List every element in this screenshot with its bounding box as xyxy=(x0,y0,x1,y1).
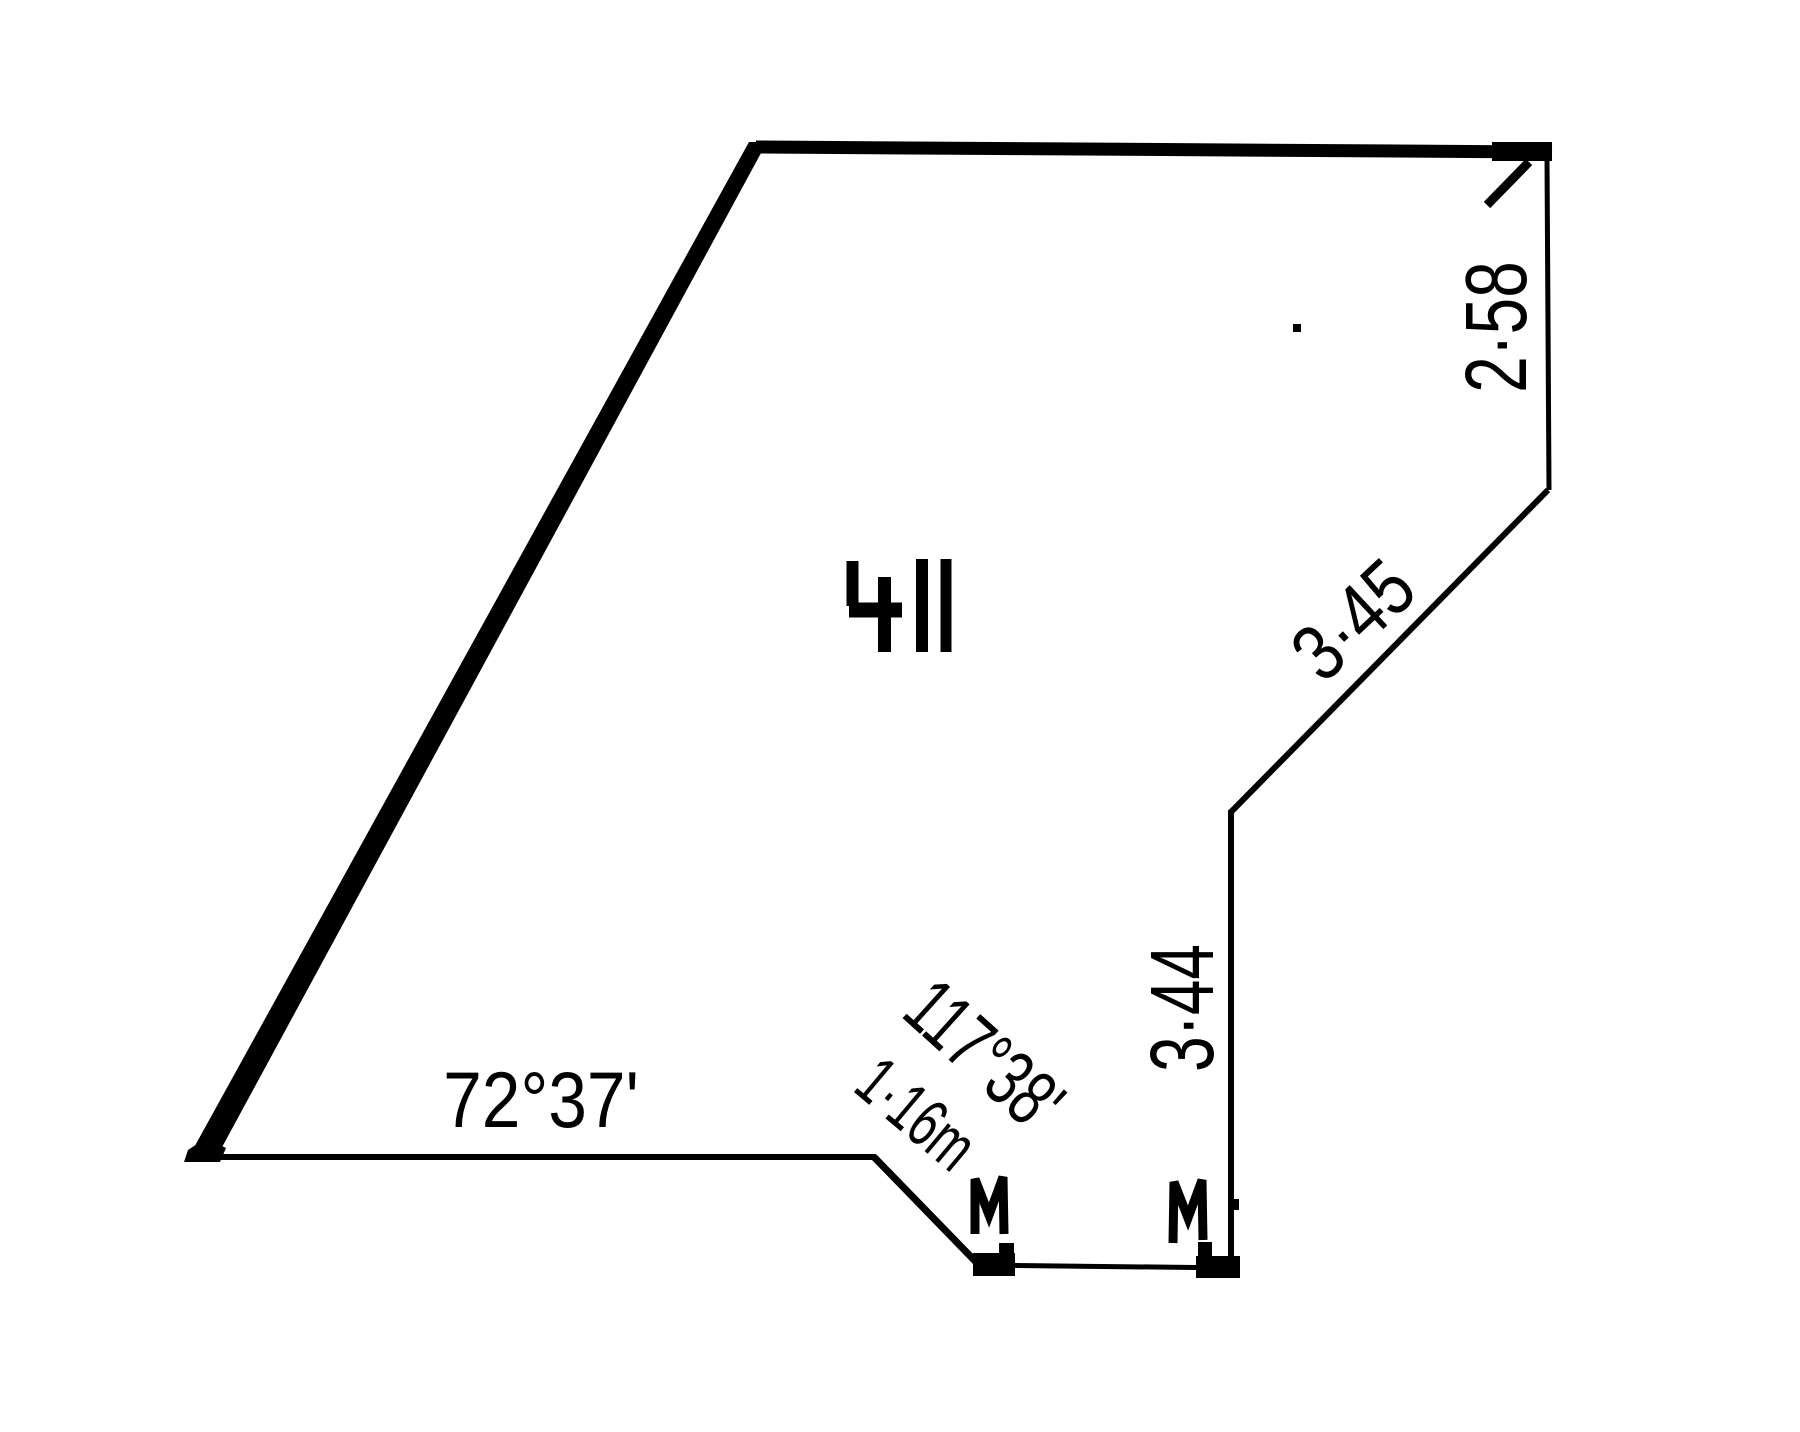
svg-text:3·44: 3·44 xyxy=(1131,944,1232,1072)
svg-text:72°37': 72°37' xyxy=(443,1056,639,1144)
svg-text:2·58: 2·58 xyxy=(1448,261,1545,392)
